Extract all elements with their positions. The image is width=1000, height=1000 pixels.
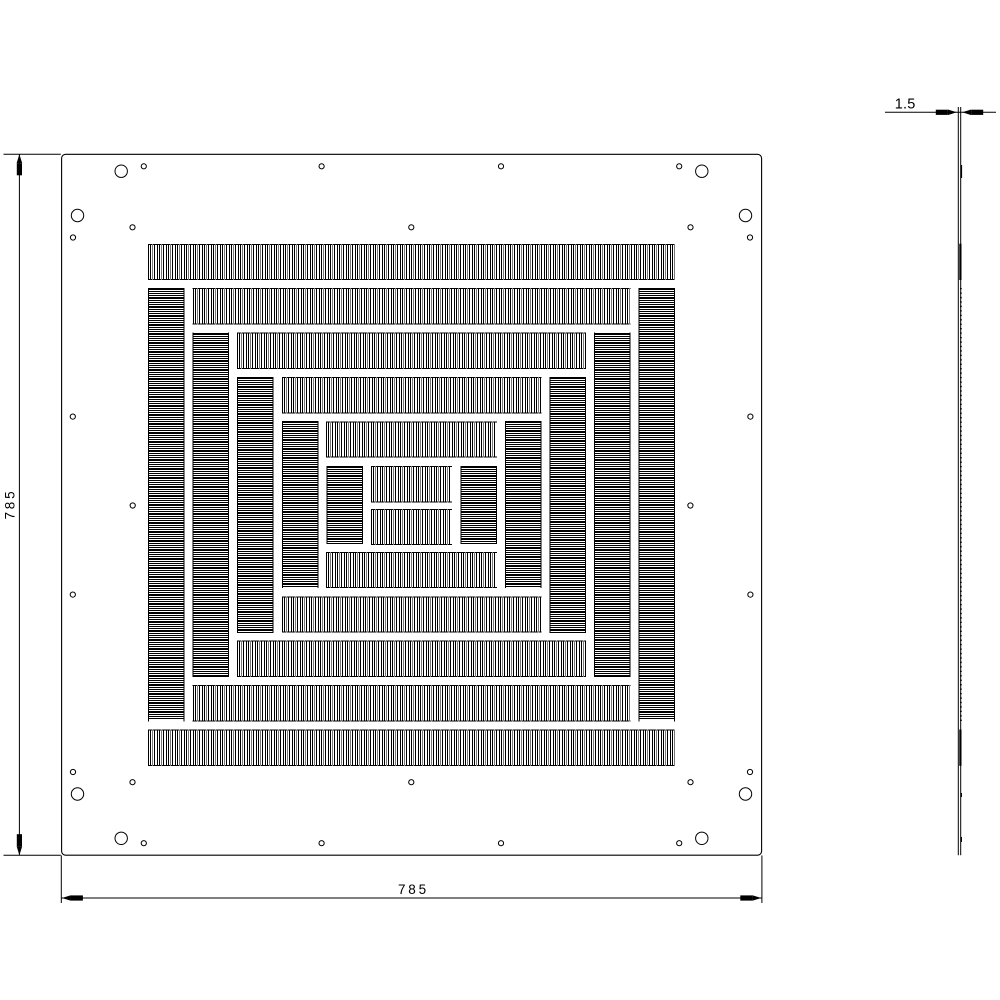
svg-text:785: 785 [398,882,429,897]
svg-text:1.5: 1.5 [895,97,916,113]
svg-text:785: 785 [3,489,18,520]
